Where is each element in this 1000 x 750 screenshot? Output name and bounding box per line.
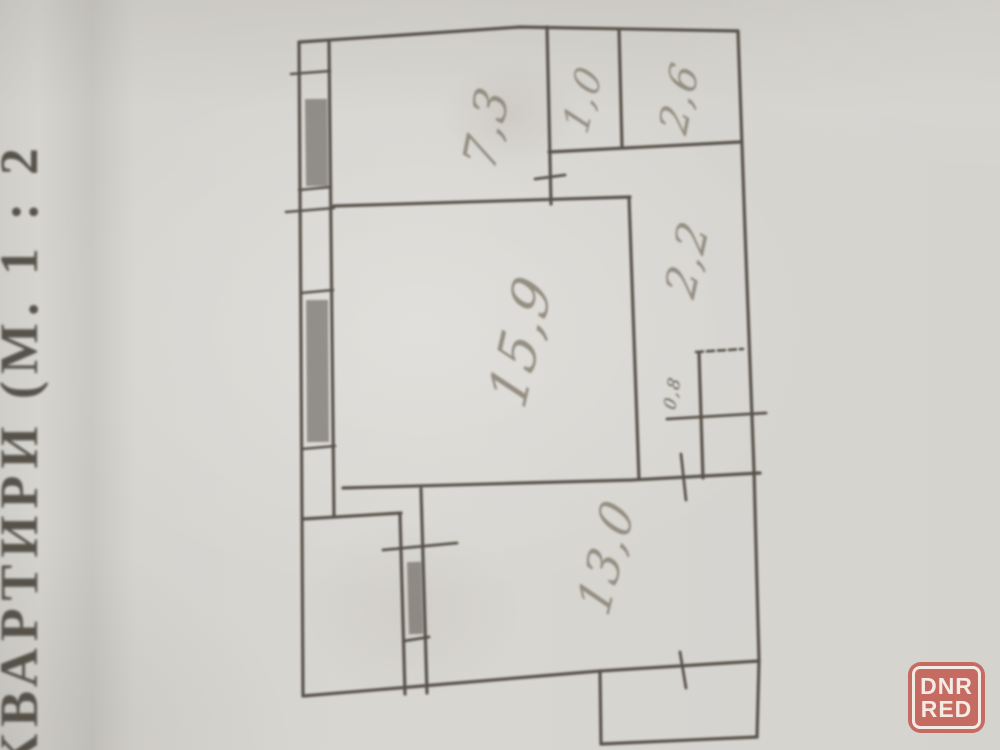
watermark-text-line: RED [921, 698, 973, 721]
balcony-outline [600, 661, 759, 744]
dnr-red-watermark: DNR RED [908, 662, 985, 733]
paper-photo: КВАРТИРИ (М. 1 : 2 [0, 0, 1000, 750]
floor-plan-drawing: 7,3 1,0 2,6 15,9 2,2 0,8 13,0 [0, 0, 1000, 750]
dnr-red-watermark-border: DNR RED [912, 666, 981, 729]
watermark-text-line: DNR [920, 675, 973, 698]
